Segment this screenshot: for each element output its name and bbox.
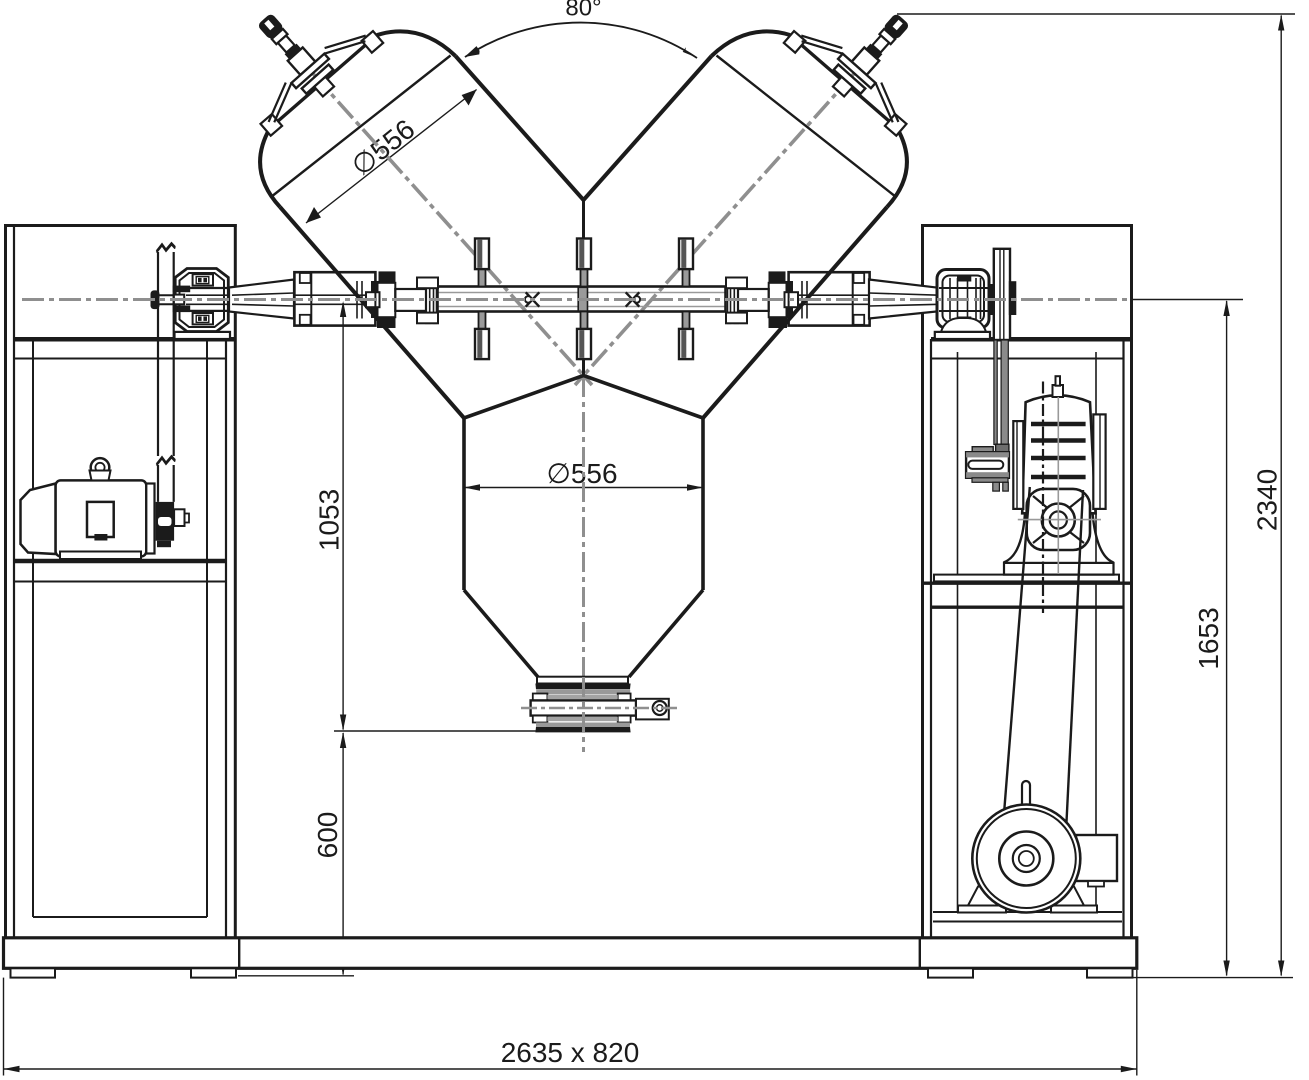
svg-text:2635 x 820: 2635 x 820 xyxy=(501,1037,640,1068)
svg-text:2340: 2340 xyxy=(1252,469,1283,531)
svg-text:1653: 1653 xyxy=(1193,607,1224,669)
svg-text:80°: 80° xyxy=(565,0,601,22)
svg-text:1053: 1053 xyxy=(314,489,345,551)
svg-text:600: 600 xyxy=(312,812,343,859)
